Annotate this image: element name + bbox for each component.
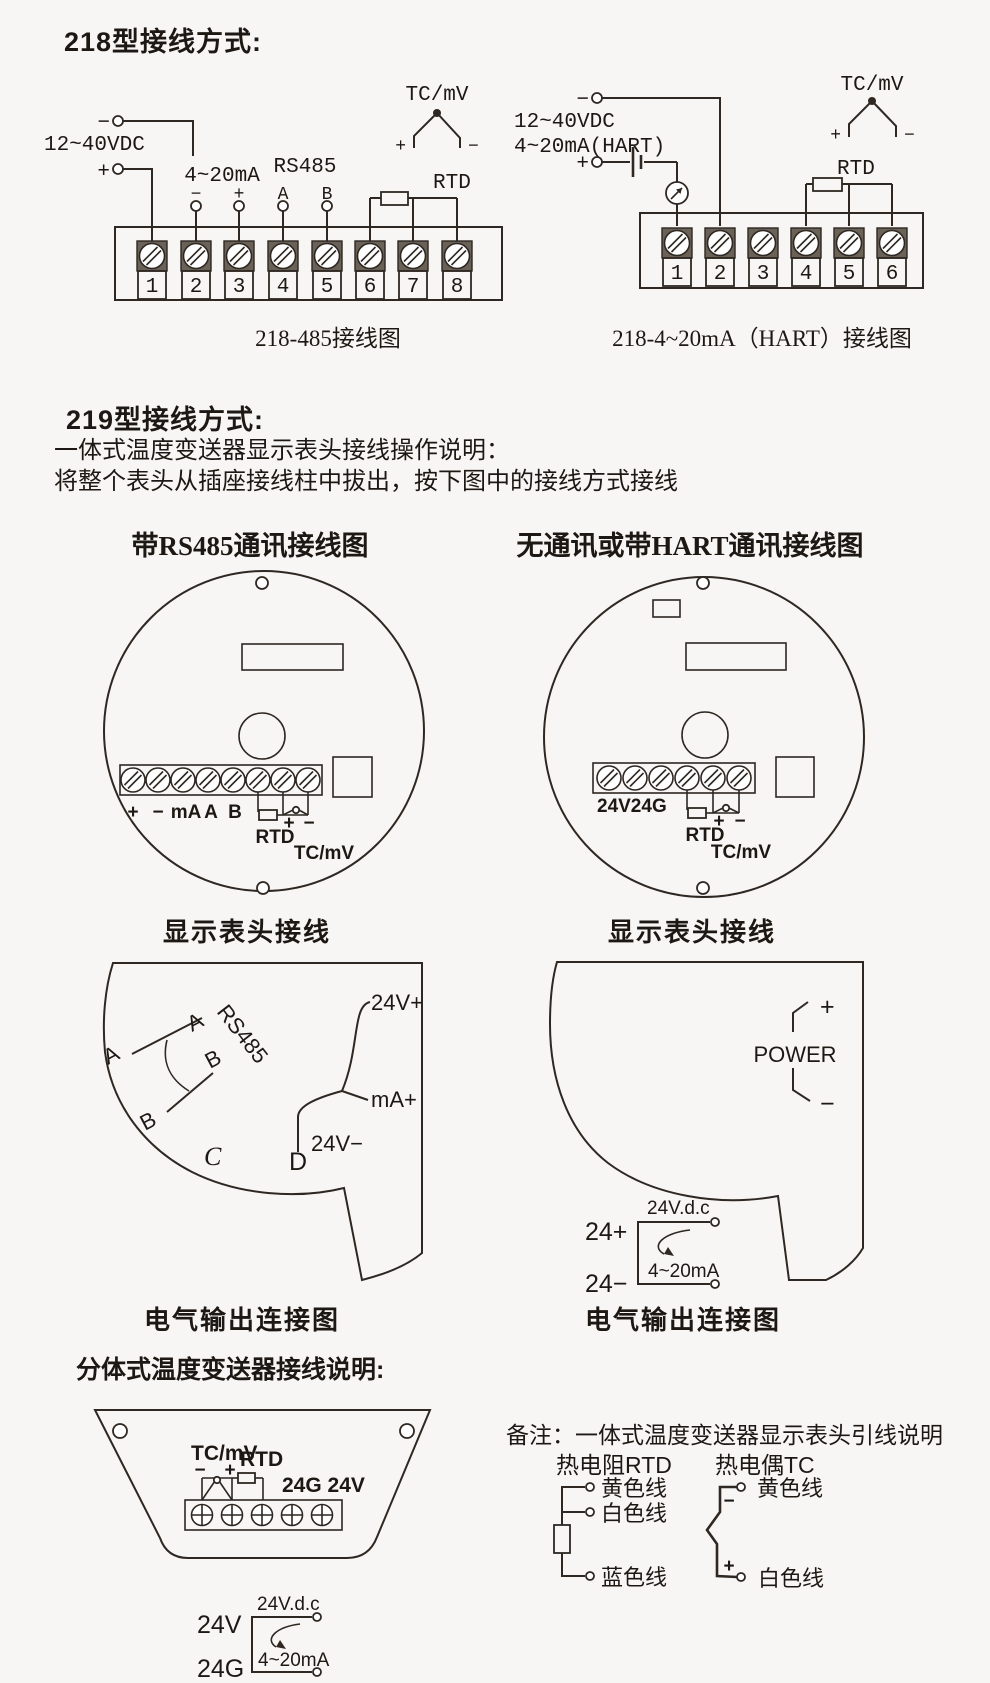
label-c: C (204, 1142, 222, 1171)
screw-terminal-icon (727, 766, 751, 790)
loop-arrow-icon (658, 1230, 690, 1254)
label-24v-minus: 24V− (311, 1131, 363, 1156)
screw-terminal-icon (623, 766, 647, 790)
screw-terminal-icon (296, 768, 320, 792)
rtd-wire-blue: 蓝色线 (601, 1565, 667, 1590)
label-24-plus: 24+ (585, 1218, 627, 1246)
screw-terminal-icon (222, 1505, 243, 1526)
phillips-screw-strip (192, 1505, 333, 1526)
tc-label: TC/mV (711, 842, 772, 863)
rtd-tc-motif: RTD + − TC/mV (685, 790, 771, 863)
terminal-number: 1 (671, 263, 684, 286)
power-plus: + (820, 993, 835, 1021)
plus-label: + (97, 161, 110, 184)
tc-minus: − (904, 126, 915, 146)
screw-terminal-icon (146, 768, 170, 792)
split-transmitter-board: TC/mV RTD − + 24G 24V (95, 1410, 430, 1558)
split-output-box: 24V 24G 24V.d.c 4~20mA (197, 1594, 330, 1683)
minus-label: − (734, 811, 745, 832)
screw-terminal-icon (312, 1505, 333, 1526)
screw-terminal-icon (224, 241, 254, 271)
rtd-label: RTD (433, 172, 471, 195)
plus-label: + (576, 153, 589, 176)
label-24-minus: 24− (585, 1270, 627, 1298)
output-connection-hart: POWER + − 24+ 24− 24V.d.c 4~20mA (550, 962, 863, 1298)
output-connection-rs485: A A B B RS485 C D 24V+ mA+ 24V− (99, 963, 423, 1280)
label-4-20ma: 4~20mA (648, 1261, 720, 1282)
label-24vdc: 24V.d.c (257, 1594, 320, 1615)
caption-218-485: 218-485接线图 (255, 326, 401, 351)
terminal-number: 4 (277, 276, 290, 299)
terminal-number: 1 (146, 276, 159, 299)
terminal-number: 7 (407, 276, 420, 299)
rtd-sensor: RTD (370, 172, 471, 241)
diagrams-canvas: 1 2 3 4 5 6 7 8 − + 12~40VDC 4~20m (0, 0, 990, 1683)
power-supply-wires: − + 12~40VDC (44, 112, 193, 241)
tc-plus: + (723, 1556, 734, 1577)
loop-label: 4~20mA(HART) (514, 136, 665, 159)
tc-minus: − (468, 137, 479, 157)
label-ma: mA (171, 802, 202, 823)
label-24g-24v: 24G 24V (282, 1474, 365, 1497)
connector-box (333, 757, 372, 797)
plus-label: + (283, 813, 294, 834)
display-window (686, 643, 786, 670)
screw-terminal-icon (834, 228, 864, 258)
button-circle (682, 712, 728, 758)
tc-label: TC/mV (294, 843, 355, 864)
output-terminal-box: 24+ 24− 24V.d.c 4~20mA (585, 1198, 720, 1298)
label-24v: 24V (197, 1611, 242, 1639)
terminal-number: 2 (190, 276, 203, 299)
tc-minus: − (723, 1491, 734, 1512)
connector-box (776, 757, 814, 797)
screw-terminal-icon (221, 768, 245, 792)
label-ma-plus: mA+ (371, 1087, 417, 1112)
caption-218-hart: 218-4~20mA（HART）接线图 (612, 326, 912, 351)
current-loop-wires: 4~20mA − + (184, 165, 260, 241)
label-plus: + (127, 802, 138, 823)
screw-strip-8 (121, 768, 320, 792)
tc-wire-white: 白色线 (758, 1566, 824, 1591)
rtd-tc-motif: RTD + − TC/mV (255, 792, 354, 864)
label-24g: 24G (197, 1655, 244, 1683)
screw-terminal-icon (252, 1505, 273, 1526)
rs485-label: RS485 (273, 156, 336, 179)
note-tc-wires: − + 黄色线 白色线 (707, 1476, 824, 1591)
screw-terminal-icon (312, 241, 342, 271)
screw-terminal-icon (355, 241, 385, 271)
diagram-218-485: 1 2 3 4 5 6 7 8 − + 12~40VDC 4~20m (44, 84, 502, 351)
tc-plus: + (395, 137, 406, 157)
terminal-number: 2 (714, 263, 727, 286)
small-window (653, 600, 680, 617)
minus-label: − (97, 112, 110, 135)
screw-terminal-icon (268, 241, 298, 271)
label-b-inner: B (201, 1044, 226, 1073)
terminal-block-6: 1 2 3 4 5 6 (662, 228, 907, 286)
screw-terminal-icon (701, 766, 725, 790)
plus-label: + (713, 811, 724, 832)
screw-terminal-icon (171, 768, 195, 792)
terminal-number: 3 (757, 263, 770, 286)
terminal-number: 6 (886, 263, 899, 286)
terminal-block-8: 1 2 3 4 5 6 7 8 (137, 241, 472, 299)
button-circle (239, 713, 285, 759)
screw-terminal-icon (662, 228, 692, 258)
screw-terminal-icon (675, 766, 699, 790)
power-minus: − (820, 1090, 835, 1118)
label-minus: − (152, 802, 163, 823)
rtd-label: RTD (240, 1448, 283, 1471)
label-4-20ma: 4~20mA (258, 1650, 330, 1671)
screw-terminal-icon (597, 766, 621, 790)
display-head-rs485: + − mA A B RTD + − TC/mV (104, 571, 424, 894)
vdc-label: 12~40VDC (44, 134, 145, 157)
screw-terminal-icon (271, 768, 295, 792)
loop-arrow-icon (271, 1624, 300, 1647)
label-b: B (228, 802, 242, 823)
label-a-outer: A (99, 1040, 124, 1069)
screw-terminal-icon (705, 228, 735, 258)
label-rs485: RS485 (212, 1000, 273, 1068)
screw-terminal-icon (877, 228, 907, 258)
label-24vdc: 24V.d.c (647, 1198, 710, 1219)
rtd-wire-white: 白色线 (601, 1501, 667, 1526)
label-a-inner: A (183, 1007, 208, 1036)
screw-terminal-icon (137, 241, 167, 271)
minus-label: − (576, 89, 589, 112)
terminal-number: 5 (843, 263, 856, 286)
wiring-instruction-page: 218型接线方式: 219型接线方式: 一体式温度变送器显示表头接线操作说明： … (0, 0, 990, 1683)
display-window (242, 644, 343, 670)
tc-label: TC/mV (840, 74, 903, 97)
label-24v24g: 24V24G (597, 796, 667, 817)
rtd-sensor: RTD (806, 158, 892, 226)
thermocouple-sensor: TC/mV + − (830, 74, 915, 146)
screw-terminal-icon (192, 1505, 213, 1526)
screw-terminal-icon (442, 241, 472, 271)
terminal-number: 8 (451, 276, 464, 299)
terminal-number: 4 (800, 263, 813, 286)
label-power: POWER (753, 1042, 836, 1067)
screw-strip-6 (597, 766, 751, 790)
terminal-number: 3 (233, 276, 246, 299)
screw-terminal-icon (246, 768, 270, 792)
power-loop-wires: − 12~40VDC 4~20mA(HART) + (514, 89, 720, 226)
rtd-wire-yellow: 黄色线 (601, 1476, 667, 1501)
screw-terminal-icon (196, 768, 220, 792)
label-d: D (289, 1148, 307, 1176)
thermocouple-sensor: TC/mV + − (395, 84, 479, 157)
tc-wire-yellow: 黄色线 (757, 1476, 823, 1501)
terminal-number: 6 (364, 276, 377, 299)
screw-terminal-icon (398, 241, 428, 271)
vdc-label: 12~40VDC (514, 111, 615, 134)
screw-terminal-icon (181, 241, 211, 271)
screw-terminal-icon (748, 228, 778, 258)
label-a: A (204, 802, 218, 823)
tc-label: TC/mV (405, 84, 468, 107)
note-rtd-wires: 黄色线 白色线 蓝色线 (554, 1476, 667, 1590)
terminal-number: 5 (321, 276, 334, 299)
display-head-hart: 24V24G RTD + − TC/mV (544, 577, 864, 897)
screw-terminal-icon (649, 766, 673, 790)
screw-terminal-icon (282, 1505, 303, 1526)
minus-label: − (303, 813, 314, 834)
label-24v-plus: 24V+ (371, 990, 423, 1015)
screw-terminal-icon (791, 228, 821, 258)
diagram-218-hart: 1 2 3 4 5 6 − 12~40VDC 4~20mA(HART) + (514, 74, 923, 351)
screw-terminal-icon (121, 768, 145, 792)
tc-plus: + (830, 126, 841, 146)
rs485-wires: RS485 A B (273, 156, 336, 241)
